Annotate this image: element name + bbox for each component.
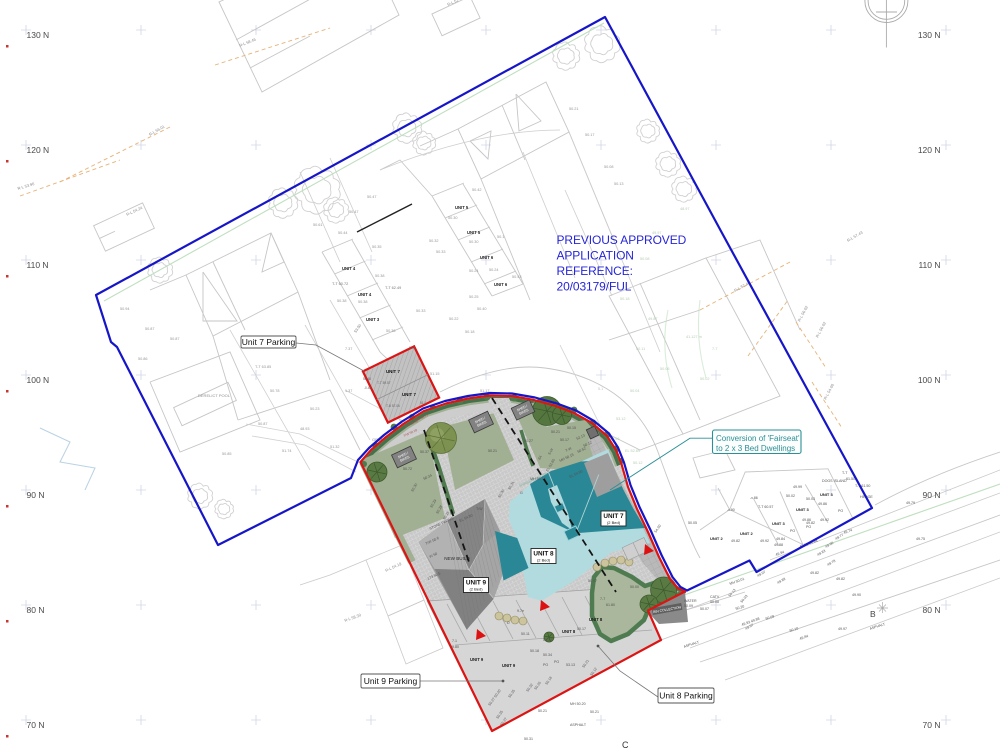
svg-text:UNIT 8: UNIT 8 <box>589 617 603 622</box>
svg-text:100 N: 100 N <box>27 375 50 385</box>
svg-text:50.38: 50.38 <box>337 299 347 303</box>
svg-text:T-T 60.57: T-T 60.57 <box>758 505 773 509</box>
svg-text:T/W: T/W <box>476 507 483 511</box>
svg-text:130 N: 130 N <box>27 30 50 40</box>
svg-text:UNIT 4: UNIT 4 <box>358 292 372 297</box>
svg-text:50.06: 50.06 <box>660 367 670 371</box>
svg-text:9.7e: 9.7e <box>517 609 524 613</box>
svg-text:100 N: 100 N <box>918 375 941 385</box>
svg-text:49.82: 49.82 <box>731 539 740 543</box>
svg-text:50.33: 50.33 <box>416 309 426 313</box>
svg-text:50.25: 50.25 <box>469 295 479 299</box>
svg-text:UNIT 6: UNIT 6 <box>494 282 508 287</box>
svg-text:50.61: 50.61 <box>313 223 323 227</box>
svg-text:50.08: 50.08 <box>710 600 719 604</box>
svg-text:90 N: 90 N <box>923 490 941 500</box>
svg-text:50.02: 50.02 <box>700 377 710 381</box>
svg-text:50.12: 50.12 <box>633 461 643 465</box>
svg-text:53.12: 53.12 <box>616 417 626 421</box>
svg-text:48.93: 48.93 <box>300 427 310 431</box>
svg-text:50.86: 50.86 <box>138 357 148 361</box>
svg-text:50.87: 50.87 <box>258 422 268 426</box>
svg-text:50.09: 50.09 <box>684 604 693 608</box>
svg-text:UNIT 9: UNIT 9 <box>502 663 516 668</box>
svg-text:50.00: 50.00 <box>630 585 639 589</box>
svg-text:51.1: 51.1 <box>420 401 426 405</box>
svg-text:50.08: 50.08 <box>604 165 614 169</box>
svg-text:G: G <box>520 491 523 495</box>
svg-text:(2 Bed): (2 Bed) <box>537 558 551 563</box>
svg-text:51.74: 51.74 <box>282 449 292 453</box>
svg-text:50.44: 50.44 <box>338 231 348 235</box>
svg-text:UNIT 6: UNIT 6 <box>480 255 494 260</box>
svg-text:49.88: 49.88 <box>774 543 783 547</box>
svg-text:MH 50.20: MH 50.20 <box>570 702 586 706</box>
svg-text:50.87: 50.87 <box>170 337 180 341</box>
svg-text:48.97: 48.97 <box>680 207 690 211</box>
svg-text:50.35: 50.35 <box>372 245 382 249</box>
svg-text:50.08: 50.08 <box>640 257 650 261</box>
svg-text:PO: PO <box>543 663 548 667</box>
svg-text:APPLICATION: APPLICATION <box>557 248 634 262</box>
svg-text:to 2 x 3 Bed Dwellings: to 2 x 3 Bed Dwellings <box>716 444 795 453</box>
svg-text:20/03179/FUL: 20/03179/FUL <box>557 280 632 294</box>
svg-text:50.12: 50.12 <box>543 638 552 642</box>
svg-text:50.78: 50.78 <box>270 389 280 393</box>
svg-text:49.87: 49.87 <box>648 317 658 321</box>
svg-text:UNIT 2: UNIT 2 <box>740 531 753 536</box>
svg-text:70 N: 70 N <box>923 720 941 730</box>
svg-text:41.127 m: 41.127 m <box>686 335 702 339</box>
svg-text:T-T 61.50: T-T 61.50 <box>855 484 870 488</box>
svg-text:DOGS ISLAND: DOGS ISLAND <box>822 479 847 483</box>
svg-text:WATER: WATER <box>684 599 697 603</box>
svg-text:53.13: 53.13 <box>566 663 575 667</box>
svg-text:MH 50.14: MH 50.14 <box>530 477 546 481</box>
svg-text:50.23: 50.23 <box>310 407 320 411</box>
svg-text:50.94: 50.94 <box>120 307 130 311</box>
svg-text:UNIT 7: UNIT 7 <box>386 369 400 374</box>
svg-text:49.82: 49.82 <box>810 571 819 575</box>
svg-text:130 N: 130 N <box>918 30 941 40</box>
svg-text:49.90: 49.90 <box>852 593 861 597</box>
svg-text:49.79: 49.79 <box>906 501 915 505</box>
svg-text:61.80: 61.80 <box>606 603 615 607</box>
svg-text:50.21: 50.21 <box>569 107 579 111</box>
svg-text:90 N: 90 N <box>27 490 45 500</box>
svg-text:5.1: 5.1 <box>598 387 603 391</box>
svg-text:UNIT 4: UNIT 4 <box>342 266 356 271</box>
svg-text:PO: PO <box>838 509 843 513</box>
svg-text:CATV: CATV <box>710 595 720 599</box>
svg-text:50.48: 50.48 <box>363 377 371 381</box>
svg-text:49.86: 49.86 <box>802 518 811 522</box>
svg-text:51.32: 51.32 <box>330 445 340 449</box>
svg-text:50.15: 50.15 <box>567 426 576 430</box>
svg-text:UNIT 5: UNIT 5 <box>467 230 481 235</box>
svg-text:50.30: 50.30 <box>469 240 479 244</box>
svg-text:D: D <box>507 621 510 625</box>
svg-text:(2 Bed): (2 Bed) <box>607 520 621 525</box>
svg-text:PO: PO <box>790 529 795 533</box>
svg-text:50.17: 50.17 <box>577 627 586 631</box>
svg-text:50.24: 50.24 <box>469 269 479 273</box>
svg-text:UNIT 7: UNIT 7 <box>603 513 624 520</box>
svg-text:50.87: 50.87 <box>145 327 155 331</box>
svg-text:ASPHALT: ASPHALT <box>570 723 587 727</box>
svg-text:50.18: 50.18 <box>465 330 475 334</box>
svg-text:-v.86: -v.86 <box>750 496 758 500</box>
svg-text:50.38: 50.38 <box>358 300 368 304</box>
svg-text:50.07: 50.07 <box>588 579 597 583</box>
svg-text:50.31: 50.31 <box>524 737 533 741</box>
svg-text:7.37: 7.37 <box>345 347 352 351</box>
svg-text:UNIT 3: UNIT 3 <box>820 492 833 497</box>
svg-text:Conversion of 'Fairseat': Conversion of 'Fairseat' <box>716 434 800 443</box>
svg-text:Unit 8 Parking: Unit 8 Parking <box>659 690 713 700</box>
svg-text:UNIT 3: UNIT 3 <box>772 521 785 526</box>
svg-text:50.07: 50.07 <box>700 607 709 611</box>
svg-text:7-7: 7-7 <box>712 347 718 351</box>
svg-text:7-7: 7-7 <box>600 597 605 601</box>
svg-text:UNIT 9: UNIT 9 <box>466 580 487 587</box>
svg-text:DERELICT POOL: DERELICT POOL <box>198 393 231 398</box>
svg-text:50.17: 50.17 <box>560 438 569 442</box>
svg-text:T-T 59.57: T-T 59.57 <box>377 381 391 385</box>
svg-text:C: C <box>622 740 629 750</box>
svg-text:50.43: 50.43 <box>512 275 522 279</box>
svg-text:T-T 63.85: T-T 63.85 <box>255 365 271 369</box>
svg-text:Unit 7 Parking: Unit 7 Parking <box>242 337 296 347</box>
svg-text:UNIT 2: UNIT 2 <box>710 536 723 541</box>
svg-text:49.92: 49.92 <box>820 518 829 522</box>
svg-text:UNIT 8: UNIT 8 <box>533 551 554 558</box>
svg-text:50.47: 50.47 <box>367 195 377 199</box>
svg-text:UNIT 5: UNIT 5 <box>455 205 469 210</box>
svg-text:50.02: 50.02 <box>786 494 795 498</box>
svg-text:49.75: 49.75 <box>916 537 925 541</box>
svg-text:PO: PO <box>806 525 811 529</box>
svg-text:50.21: 50.21 <box>551 430 560 434</box>
svg-text:50.21: 50.21 <box>590 710 599 714</box>
svg-text:49.92: 49.92 <box>760 539 769 543</box>
svg-text:UNIT 3: UNIT 3 <box>366 317 380 322</box>
svg-text:49.82: 49.82 <box>836 577 845 581</box>
svg-text:50.34: 50.34 <box>543 653 552 657</box>
svg-text:80 N: 80 N <box>923 605 941 615</box>
svg-text:PO: PO <box>554 660 559 664</box>
svg-text:UNIT 7: UNIT 7 <box>402 392 416 397</box>
svg-text:50.30: 50.30 <box>448 216 458 220</box>
svg-text:50.21: 50.21 <box>488 449 497 453</box>
svg-text:REFERENCE:: REFERENCE: <box>557 264 633 278</box>
svg-text:50.32: 50.32 <box>429 239 439 243</box>
svg-text:50.11: 50.11 <box>521 632 530 636</box>
svg-text:-v.90: -v.90 <box>727 508 735 512</box>
svg-text:70 N: 70 N <box>27 720 45 730</box>
svg-text:51.15: 51.15 <box>430 372 440 376</box>
svg-text:50.24: 50.24 <box>489 268 499 272</box>
svg-text:120 N: 120 N <box>27 145 50 155</box>
svg-text:T-T 62.49: T-T 62.49 <box>385 286 401 290</box>
svg-text:110 N: 110 N <box>27 260 49 270</box>
svg-text:UNIT 3: UNIT 3 <box>796 507 809 512</box>
svg-text:T-T: T-T <box>842 471 848 475</box>
svg-text:T-B 57.06: T-B 57.06 <box>386 404 400 408</box>
svg-text:50.37: 50.37 <box>420 450 429 454</box>
svg-text:50.21: 50.21 <box>538 709 547 713</box>
svg-text:1.37: 1.37 <box>345 389 352 393</box>
svg-text:50.42: 50.42 <box>472 188 482 192</box>
svg-text:50.27: 50.27 <box>524 439 533 443</box>
svg-text:50.22: 50.22 <box>449 317 459 321</box>
svg-text:49.86: 49.86 <box>818 502 827 506</box>
svg-text:49.99: 49.99 <box>793 485 802 489</box>
svg-text:50.03: 50.03 <box>806 497 815 501</box>
svg-text:Unit 9 Parking: Unit 9 Parking <box>364 676 418 686</box>
svg-text:50.18: 50.18 <box>620 297 630 301</box>
svg-text:50.11: 50.11 <box>636 347 645 351</box>
svg-text:T-T 60.72: T-T 60.72 <box>332 282 348 286</box>
svg-text:UNIT 9: UNIT 9 <box>470 657 484 662</box>
svg-text:50.33: 50.33 <box>436 250 446 254</box>
svg-text:PREVIOUS APPROVED: PREVIOUS APPROVED <box>557 233 687 247</box>
svg-text:61.50: 61.50 <box>846 477 855 481</box>
svg-text:50.04: 50.04 <box>630 389 640 393</box>
svg-text:50.85: 50.85 <box>222 452 232 456</box>
svg-text:80 N: 80 N <box>27 605 45 615</box>
svg-text:-0.42: -0.42 <box>364 386 371 390</box>
svg-text:B: B <box>870 609 876 619</box>
svg-text:50.1: 50.1 <box>497 235 504 239</box>
svg-text:50.38: 50.38 <box>375 274 385 278</box>
svg-text:50.36: 50.36 <box>386 329 396 333</box>
svg-text:50.05: 50.05 <box>688 521 697 525</box>
svg-text:110 N: 110 N <box>918 260 940 270</box>
svg-text:49.84: 49.84 <box>776 537 785 541</box>
svg-text:50.40: 50.40 <box>477 307 487 311</box>
svg-text:50.13: 50.13 <box>614 182 624 186</box>
svg-text:UNIT 8: UNIT 8 <box>562 629 576 634</box>
svg-text:7.1: 7.1 <box>452 639 457 643</box>
svg-text:(2 Bed): (2 Bed) <box>469 587 483 592</box>
svg-text:50.47: 50.47 <box>349 210 359 214</box>
svg-text:120 N: 120 N <box>918 145 941 155</box>
svg-text:50.17: 50.17 <box>585 133 595 137</box>
svg-text:50.18: 50.18 <box>530 649 539 653</box>
svg-text:EL 52.69: EL 52.69 <box>625 449 640 453</box>
svg-text:-0.41: -0.41 <box>408 346 415 350</box>
svg-text:49.97: 49.97 <box>838 627 847 631</box>
svg-text:50.72: 50.72 <box>403 467 412 471</box>
